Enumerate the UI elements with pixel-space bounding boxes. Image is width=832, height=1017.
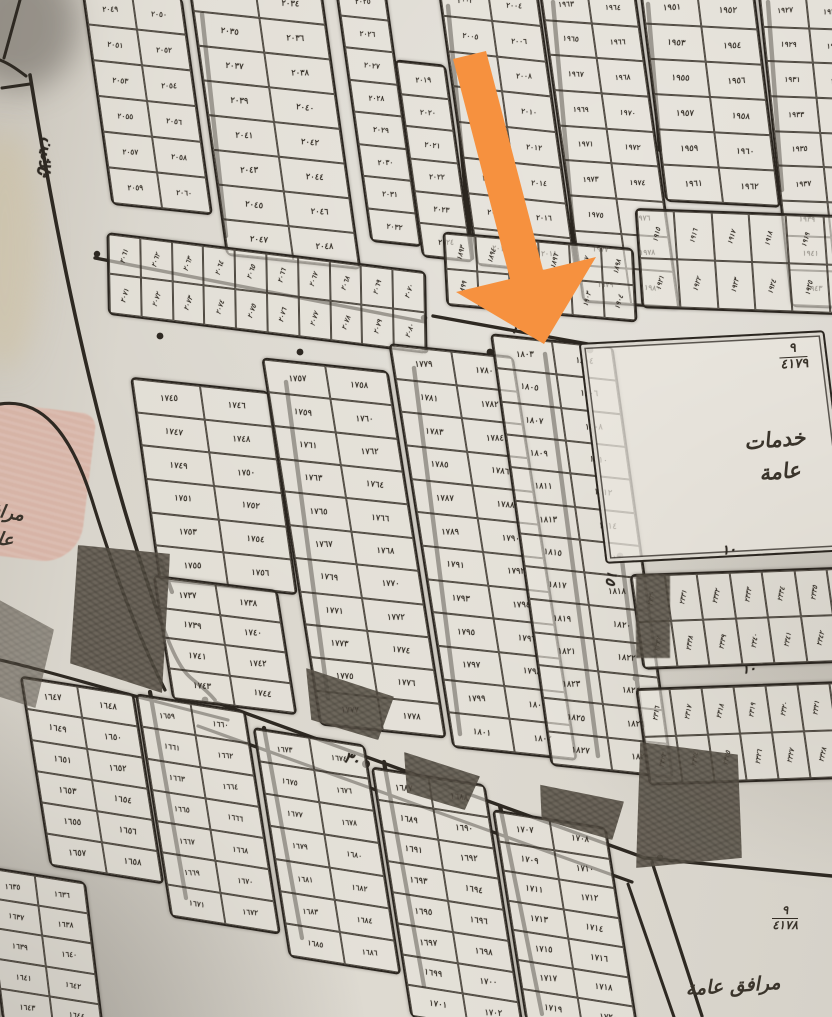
map-photo: ٩ ٤١٧٩ خدمات عامة ٩ ٤١٧٨ مرافق عامة مراف…: [0, 0, 832, 1017]
locator-arrow-shape: [453, 51, 596, 344]
locator-arrow: [0, 0, 832, 1017]
